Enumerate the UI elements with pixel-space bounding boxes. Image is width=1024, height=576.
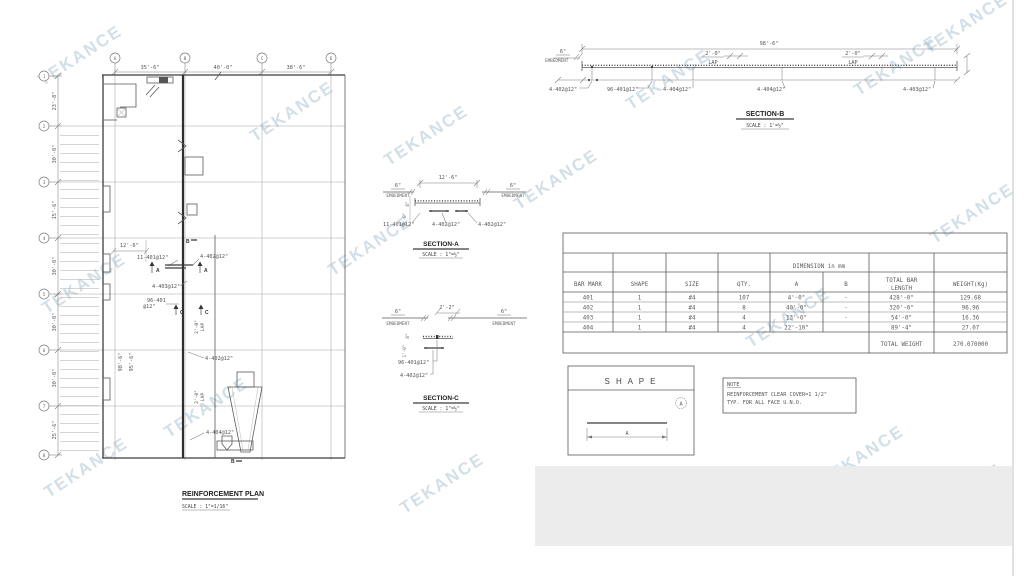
cell: 129.68 [960, 296, 981, 302]
embed-dim-right: 6" [501, 309, 507, 315]
cell: 89'-4" [891, 326, 912, 332]
total-weight-value: 270.070000 [953, 342, 988, 348]
cell: 320'-0" [889, 306, 913, 312]
grid-bubble-label: 1 [43, 74, 46, 80]
section-a-label-0: 11-401@12" [383, 222, 414, 228]
section-marker-c: C [205, 310, 209, 316]
grid-bubble-label: 7 [43, 404, 46, 410]
note-line-2: TYP. FOR ALL FACE U.N.O. [727, 400, 802, 406]
embed-word-left: EMBEDMENT [386, 321, 410, 327]
dim-col-2: 40'-0" [214, 65, 233, 71]
cell: #4 [689, 296, 696, 302]
grid-bubble-label: A [114, 56, 117, 62]
embed-dim: 6" [560, 49, 566, 55]
section-c-dim-top: 2'-2" [439, 305, 455, 311]
table-row: 403 1 #4 4 13'-6" - 54'-0" 16.36 [583, 316, 980, 322]
cell: 404 [583, 326, 594, 332]
cell: 40'-0" [786, 306, 807, 312]
section-b-label-2: 4-404@12" [663, 87, 691, 93]
note-title: NOTE [727, 382, 740, 388]
cell: 4'-0" [788, 296, 805, 302]
cell: 27.07 [962, 326, 980, 332]
section-a-title: SECTION-A [423, 241, 459, 248]
col-b: B [844, 282, 848, 288]
cell: 13'-6" [786, 316, 807, 322]
embed-word-left: EMBEDMENT [386, 193, 410, 199]
shape-box: S H A P E A A [568, 366, 694, 455]
note-box: NOTE REINFORCEMENT CLEAR COVER=1 1/2" TY… [723, 378, 856, 413]
embed-dim-left: 6" [395, 183, 401, 189]
grid-bubble-label: 4 [43, 236, 46, 242]
section-b-label-0: 4-402@12" [549, 87, 577, 93]
section-marker-b: B [231, 459, 235, 465]
grid-bubble-label: 8 [43, 453, 46, 459]
cell: 4 [742, 326, 746, 332]
cell: - [844, 296, 848, 302]
col-weight: WEIGHT(Kg) [953, 282, 988, 288]
plan-hatch-strip [60, 131, 99, 453]
section-b-dim-top: 98'-6" [760, 41, 779, 47]
cell: #4 [689, 306, 696, 312]
plan-bars-402-top: 4-402@12" [200, 254, 228, 260]
plan-grid-bubbles-left: 1 2 3 4 5 6 7 8 [39, 71, 49, 460]
plan-dim-v1: 98'-6" [118, 353, 124, 372]
grid-bubble-label: C [261, 56, 264, 62]
section-a-scale: SCALE : 1"=½" [422, 251, 460, 258]
plan-bars-401-main-2: @12" [143, 304, 156, 310]
plan-lap-dim: 2'-0" [194, 320, 200, 334]
total-weight-label: TOTAL WEIGHT [881, 342, 923, 348]
cell: - [844, 316, 848, 322]
embed-dim-right: 6" [510, 183, 516, 189]
bar-schedule-table: DIMENSION in mm BAR MARK SHAPE SIZE QTY.… [563, 233, 1007, 353]
plan-lap-word: LAP [200, 393, 206, 402]
embed-word: EMBEDMENT [545, 58, 569, 64]
embed-word-right: EMBEDMENT [501, 193, 525, 199]
table-row: 402 1 #4 8 40'-0" - 320'-0" 96.96 [583, 306, 980, 312]
section-c-side-dim2: 1'-0" [402, 345, 408, 358]
plan-bars-404: 4-404@12" [206, 430, 234, 436]
drawing-sheet: TEKANCE TEKANCE TEKANCE TEKANCE TEKANCE … [0, 0, 1024, 576]
dim-row-2: 30'-0" [52, 145, 58, 164]
lap-dim: 2'-0" [845, 51, 861, 57]
plan-bars-401-top: 11-401@12" [137, 255, 168, 261]
shape-box-title: S H A P E [605, 377, 658, 386]
section-c-side-dim1: 8" [405, 333, 411, 338]
plan-title-block: REINFORCEMENT PLAN SCALE : 1"=1/16" [182, 491, 264, 510]
gray-panel [535, 466, 1012, 546]
grid-bubble-label: B [184, 56, 187, 62]
section-a-side-dim1: 8" [405, 201, 411, 206]
grid-bubble-label: 6 [43, 348, 46, 354]
plan-title: REINFORCEMENT PLAN [182, 491, 264, 498]
section-a: 12'-6" 6" EMBEDMENT 6" EMBEDMENT 8" 1'-0… [383, 175, 526, 258]
section-marker-b: B [186, 239, 190, 245]
plan-lap-word: LAP [200, 323, 206, 332]
section-marker-a: A [204, 268, 208, 274]
dim-row-5: 30'-0" [52, 313, 58, 332]
plan-dimension-top: 35'-6" 40'-0" 38'-6" [112, 63, 334, 75]
embed-word-right: EMBEDMENT [492, 321, 516, 327]
cell: 403 [583, 316, 594, 322]
embed-dim-left: 6" [395, 309, 401, 315]
cell: 401 [583, 296, 594, 302]
dim-row-3: 15'-6" [52, 201, 58, 220]
note-line-1: REINFORCEMENT CLEAR COVER=1 1/2" [727, 392, 827, 398]
dim-row-4: 30'-0" [52, 257, 58, 276]
section-marker-c: C [180, 310, 184, 316]
cell: 1 [638, 326, 642, 332]
section-marker-a: A [156, 268, 160, 274]
col-shape: SHAPE [631, 282, 649, 288]
col-qty: QTY. [737, 282, 751, 288]
lap-word: LAP [848, 60, 857, 66]
plan-dim-v2: 95'-6" [129, 353, 135, 372]
cell: 22'-10" [784, 326, 808, 332]
plan-grid-bubbles-top: A B C D [110, 53, 336, 63]
section-a-label-2: 4-402@12" [478, 222, 506, 228]
dim-row-6: 30'-0" [52, 369, 58, 388]
dim-row-7: 25'-6" [52, 421, 58, 440]
col-total-bar-length-1: TOTAL BAR [886, 278, 918, 284]
plan-walls [102, 75, 345, 458]
cell: 1 [638, 306, 642, 312]
cell: 54'-0" [891, 316, 912, 322]
table-row: 404 1 #4 4 22'-10" 89'-4" 27.07 [583, 326, 980, 332]
col-size: SIZE [685, 282, 699, 288]
section-b-label-3: 4-404@12" [757, 87, 785, 93]
cell: 402 [583, 306, 593, 312]
section-b: 98'-6" 6" EMBEDMENT 4-402@12" 96-401@12" [545, 41, 970, 129]
cell: 107 [739, 296, 750, 302]
cell: #4 [689, 326, 696, 332]
drawing-canvas: A B C D 35'-6" 40'-0" 38'-6" 1 2 3 4 [0, 0, 1024, 576]
cell: 96.96 [962, 306, 980, 312]
section-b-title: SECTION-B [746, 111, 785, 118]
section-b-label-1: 96-401@12" [607, 87, 638, 93]
plan-bars-403: 4-403@12" [152, 284, 180, 290]
dim-col-3: 38'-6" [287, 65, 306, 71]
table-dimension-header: DIMENSION in mm [793, 264, 846, 270]
lap-word: LAP [708, 60, 717, 66]
cell: 16.36 [962, 316, 980, 322]
dim-col-1: 35'-6" [141, 65, 160, 71]
section-c-title: SECTION-C [423, 395, 459, 402]
col-bar-mark: BAR MARK [574, 282, 602, 288]
cell: #4 [689, 316, 696, 322]
section-b-scale: SCALE : 1'=½" [746, 122, 784, 129]
lap-dim: 2'-0" [705, 51, 721, 57]
cell: 1 [638, 296, 642, 302]
plan-scale: SCALE : 1"=1/16" [182, 504, 228, 510]
section-b-label-4: 4-403@12" [903, 87, 931, 93]
col-total-bar-length-2: LENGTH [891, 286, 912, 292]
cell: 4 [742, 316, 746, 322]
section-a-dim-top: 12'-6" [439, 175, 458, 181]
table-row: 401 1 #4 107 4'-0" - 428'-0" 129.68 [583, 296, 982, 302]
section-c-scale: SCALE : 1"=½" [422, 405, 460, 412]
cell: 8 [742, 306, 746, 312]
grid-bubble-label: 3 [43, 180, 46, 186]
col-a: A [795, 282, 799, 288]
reinforcement-plan: A B C D 35'-6" 40'-0" 38'-6" 1 2 3 4 [39, 53, 345, 510]
cell: - [844, 306, 848, 312]
shape-mark: A [679, 402, 683, 408]
shape-dim-label: A [625, 431, 629, 437]
section-c: 2'-2" 6" EMBEDMENT 6" EMBEDMENT 8" 1'-0"… [382, 305, 527, 412]
grid-bubble-label: 5 [43, 292, 46, 298]
dim-row-1: 23'-8" [52, 92, 58, 111]
plan-lap-dim: 2'-0" [194, 390, 200, 404]
section-c-label-0: 96-401@12" [398, 360, 429, 366]
cell: 1 [638, 316, 642, 322]
section-c-label-1: 4-402@12" [400, 373, 428, 379]
grid-bubble-label: D [330, 56, 333, 62]
cell: 428'-0" [889, 296, 913, 302]
grid-bubble-label: 2 [43, 124, 46, 130]
plan-dim-strip: 12'-6" [120, 243, 139, 249]
plan-annotations: 12'-6" 11-401@12" 4-402@12" A A 4-403@12… [111, 239, 242, 465]
plan-bars-402-mid: 4-402@12" [205, 356, 233, 362]
